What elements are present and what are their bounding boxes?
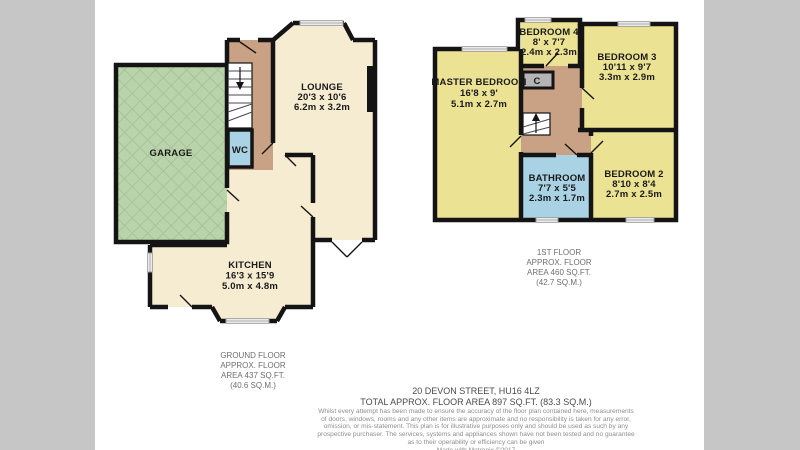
total-floor-area: TOTAL APPROX. FLOOR AREA 897 SQ.FT. (83.…: [176, 397, 776, 408]
first-floor-plan: MASTER BEDROOM 16'8 x 9' 5.1m x 2.7m BED…: [431, 18, 676, 223]
left-grey-bar: [0, 0, 95, 450]
wc-label: WC: [232, 145, 248, 156]
first-floor-caption-line: 1ST FLOOR: [479, 248, 639, 258]
ground-floor-plan: GARAGE WC LOUNGE 20'3 x 10'6 6.2m x 3.2m…: [116, 21, 375, 324]
footer: 20 DEVON STREET, HU16 4LZ TOTAL APPROX. …: [176, 386, 776, 450]
bedroom4-window: [525, 18, 551, 23]
first-floor-caption-line: APPROX. FLOOR: [479, 258, 639, 268]
first-floor-caption-line: (42.7 SQ.M.): [479, 278, 639, 288]
bathroom-dims-metric: 2.3m x 1.7m: [529, 193, 585, 204]
master-bedroom-label: MASTER BEDROOM: [431, 77, 526, 88]
kitchen-label: KITCHEN: [228, 260, 272, 271]
master-bedroom-dims-imperial: 16'8 x 9': [460, 88, 498, 99]
disclaimer-line: prospective purchaser. The services, sys…: [176, 431, 776, 439]
chimney-breast: [367, 66, 375, 112]
metropix-credit: Made with Metropix ©2017: [176, 447, 776, 450]
garage-label: GARAGE: [150, 148, 193, 159]
floorplan-page: GARAGE WC LOUNGE 20'3 x 10'6 6.2m x 3.2m…: [0, 0, 800, 450]
kitchen-dims-imperial: 16'3 x 15'9: [226, 271, 275, 282]
ground-floor-caption-line: AREA 437 SQ.FT.: [173, 371, 333, 381]
disclaimer-line: of doors, windows, rooms and any other i…: [176, 416, 776, 424]
disclaimer-line: Whilst every attempt has been made to en…: [176, 408, 776, 416]
ground-floor-stairs: [228, 63, 252, 128]
disclaimer-line: omission, or mis-statement. This plan is…: [176, 423, 776, 431]
bedroom3-window: [618, 22, 650, 27]
right-grey-bar: [704, 0, 800, 450]
floorplan-canvas: GARAGE WC LOUNGE 20'3 x 10'6 6.2m x 3.2m…: [0, 0, 800, 450]
ground-floor-caption-line: APPROX. FLOOR: [173, 361, 333, 371]
ground-floor-caption-line: GROUND FLOOR: [173, 351, 333, 361]
bathroom-window: [536, 218, 558, 223]
master-bedroom-room: [435, 49, 521, 220]
kitchen-side-window: [148, 253, 153, 272]
lounge-bay-window: [300, 21, 343, 26]
master-bedroom-window: [462, 47, 507, 52]
master-bedroom-dims-metric: 5.1m x 2.7m: [451, 99, 507, 110]
property-address: 20 DEVON STREET, HU16 4LZ: [176, 386, 776, 397]
lounge-dims-metric: 6.2m x 3.2m: [294, 102, 350, 113]
bedroom2-dims-metric: 2.7m x 2.5m: [606, 189, 662, 200]
cupboard-label: C: [533, 76, 540, 87]
first-floor-caption: 1ST FLOOR APPROX. FLOOR AREA 460 SQ.FT. …: [479, 248, 639, 288]
disclaimer-line: as to their operability or efficiency ca…: [176, 439, 776, 447]
bedroom3-dims-metric: 3.3m x 2.9m: [599, 72, 655, 83]
kitchen-bay-window: [226, 319, 269, 324]
bedroom4-dims-metric: 2.4m x 2.3m: [521, 47, 577, 58]
ground-floor-caption: GROUND FLOOR APPROX. FLOOR AREA 437 SQ.F…: [173, 351, 333, 391]
kitchen-dims-metric: 5.0m x 4.8m: [222, 281, 278, 292]
first-floor-stairs: [523, 113, 550, 135]
first-floor-caption-line: AREA 460 SQ.FT.: [479, 268, 639, 278]
bedroom2-window: [626, 218, 654, 223]
